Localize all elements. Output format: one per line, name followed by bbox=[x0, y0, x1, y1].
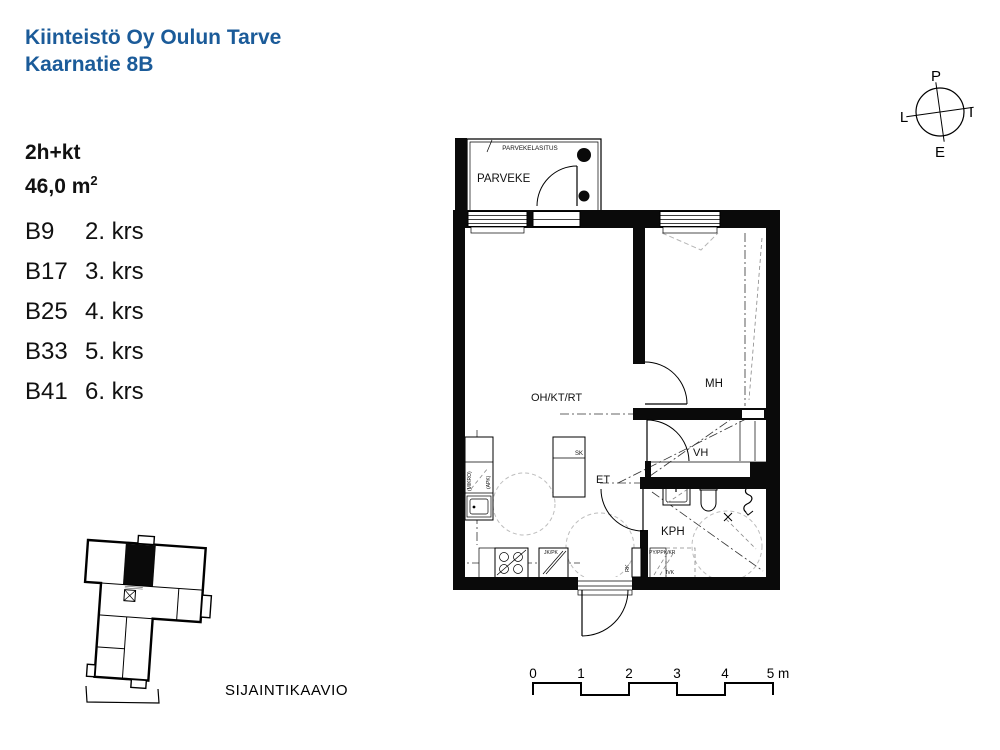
balcony-column bbox=[579, 191, 590, 202]
scale-tick-4: 4 bbox=[721, 666, 729, 681]
microwave-label: (MIKRO) bbox=[467, 471, 473, 491]
living-room-label: OH/KT/RT bbox=[531, 392, 582, 404]
scale-tick-2: 2 bbox=[625, 666, 633, 681]
compass-north-label: P bbox=[931, 68, 941, 85]
vent-label: IVK bbox=[666, 570, 675, 576]
floor-drain bbox=[724, 513, 732, 521]
scale-tick-3: 3 bbox=[673, 666, 681, 681]
balcony-glazing-label: PARVEKELASITUS bbox=[502, 145, 557, 152]
scale-bar: 0 1 2 3 4 5 m bbox=[529, 666, 789, 695]
closet-label: VH bbox=[693, 447, 708, 459]
compass-south-label: E bbox=[935, 144, 945, 161]
toilet-bowl bbox=[701, 490, 716, 511]
closet-door bbox=[647, 420, 689, 461]
scale-tick-1: 1 bbox=[577, 666, 585, 681]
centerlines bbox=[455, 233, 766, 571]
balcony-label: PARVEKE bbox=[477, 173, 531, 185]
electrical-label: RK bbox=[625, 564, 631, 572]
hall-label: ET bbox=[596, 474, 610, 486]
duct-column bbox=[750, 462, 768, 477]
dishwasher-label: (APK) bbox=[486, 475, 492, 489]
floor-plan-drawing: (MIKRO) (APK) JK/PK SK bbox=[0, 0, 1000, 750]
bathroom-door bbox=[601, 489, 643, 531]
broom-closet-label: SK bbox=[575, 451, 583, 457]
window-swing-dashes bbox=[662, 233, 718, 250]
stair-tower bbox=[201, 595, 212, 618]
floor-plan-sheet: Kiinteistö Oy Oulun Tarve Kaarnatie 8B 2… bbox=[0, 0, 1000, 750]
broom-closet: SK bbox=[553, 437, 585, 497]
laundry-label: PY/PPK/KR bbox=[649, 550, 676, 556]
compass-west-label: L bbox=[900, 109, 908, 126]
location-diagram-caption: SIJAINTIKAAVIO bbox=[225, 682, 348, 699]
bedroom-door bbox=[645, 362, 687, 404]
fridge-label: JK/PK bbox=[544, 550, 559, 556]
wall-closet-bathroom bbox=[640, 477, 768, 489]
wall-living-bedroom bbox=[633, 228, 645, 364]
compass-east-label: I bbox=[969, 104, 973, 121]
adjacent-outline bbox=[86, 686, 159, 703]
balcony-door-window bbox=[533, 212, 580, 227]
counter-corner bbox=[479, 548, 495, 578]
entrance-door bbox=[578, 577, 632, 636]
living-room-window bbox=[468, 212, 527, 234]
location-diagram: SIJAINTIKAAVIO bbox=[78, 532, 348, 703]
balcony-door-swing bbox=[537, 166, 577, 206]
electrical-cabinet: RK bbox=[625, 548, 641, 577]
compass-rose: P I E L bbox=[900, 68, 978, 161]
scale-tick-0: 0 bbox=[529, 666, 537, 681]
stair-tower bbox=[131, 679, 147, 688]
balcony-column bbox=[577, 148, 591, 162]
bedroom-label: MH bbox=[705, 378, 723, 390]
highlighted-unit bbox=[123, 544, 156, 587]
shower-symbol bbox=[744, 485, 752, 512]
stair-tower bbox=[86, 664, 95, 677]
bathroom-label: KPH bbox=[661, 526, 685, 538]
scale-end-label: 5 m bbox=[767, 666, 790, 681]
bedroom-window bbox=[660, 212, 720, 234]
stair-tower bbox=[138, 536, 155, 545]
balcony: PARVEKELASITUS PARVEKE bbox=[467, 139, 601, 210]
